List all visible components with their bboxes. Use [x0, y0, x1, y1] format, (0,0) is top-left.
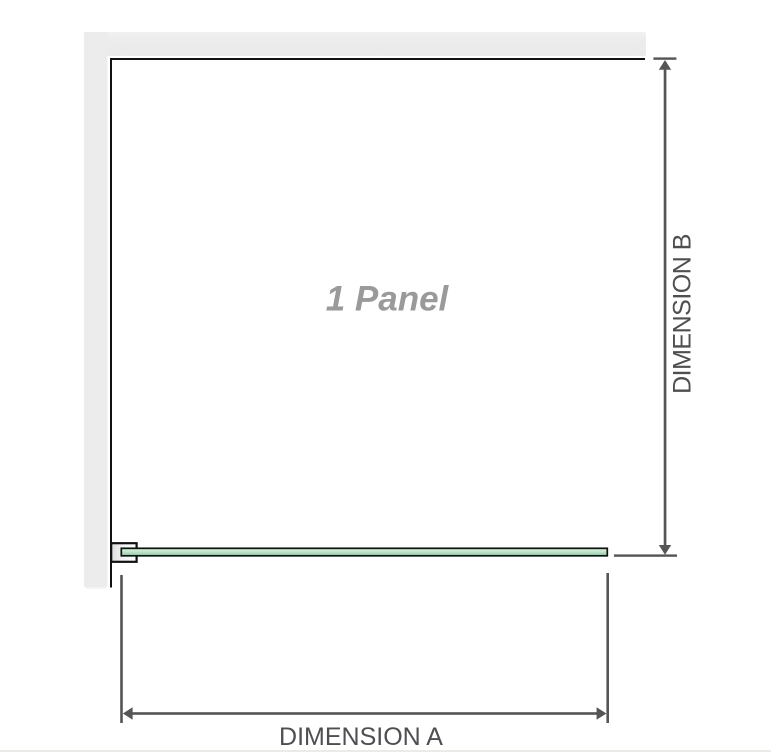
svg-text:DIMENSION B: DIMENSION B	[669, 234, 697, 394]
svg-text:1 Panel: 1 Panel	[326, 280, 450, 319]
svg-text:DIMENSION A: DIMENSION A	[279, 723, 443, 751]
